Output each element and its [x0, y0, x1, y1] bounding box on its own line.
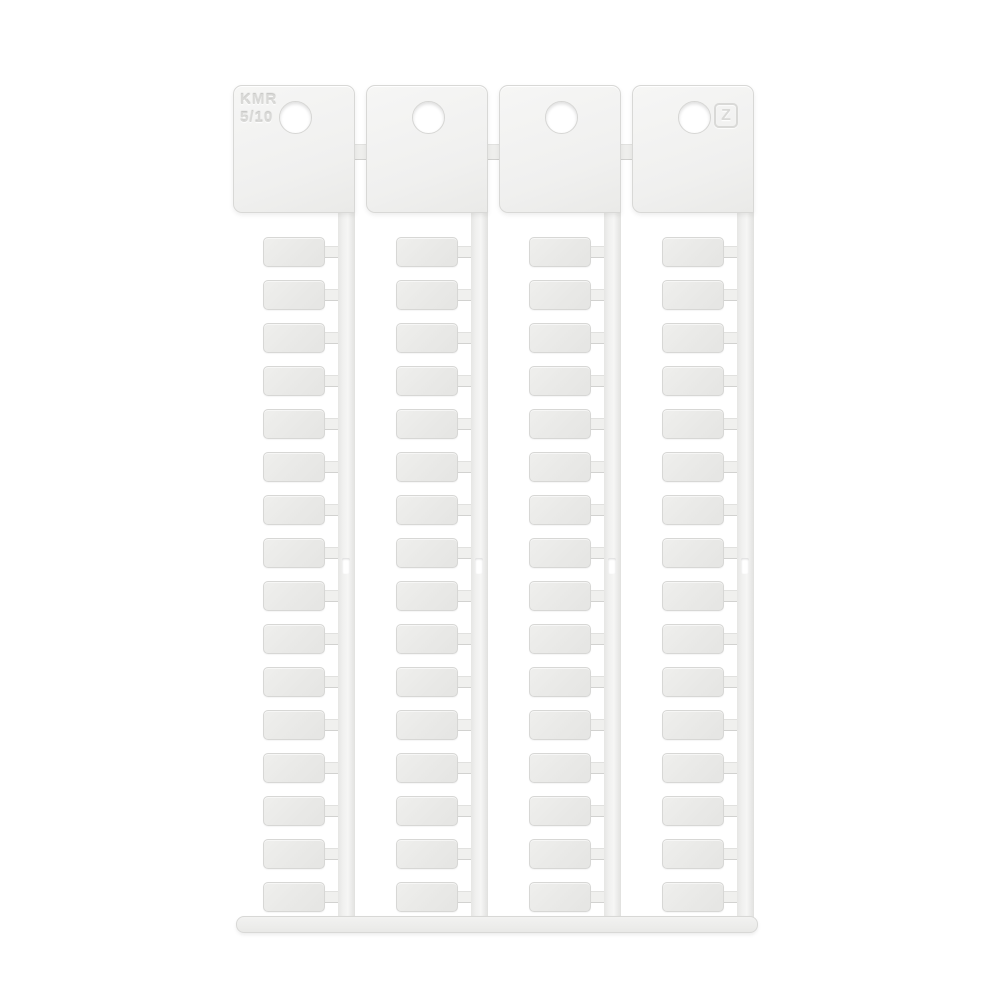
tag-stub	[324, 891, 338, 903]
tag-stub	[723, 547, 737, 559]
tag-stub	[723, 332, 737, 344]
marker-tag	[396, 452, 458, 482]
tag-stub	[457, 418, 471, 430]
tag-stub	[590, 547, 604, 559]
tag-stub	[723, 633, 737, 645]
tag-stub	[457, 547, 471, 559]
mounting-hole	[412, 101, 445, 134]
mounting-hole	[279, 101, 312, 134]
marker-tag	[396, 839, 458, 869]
marker-tag	[529, 495, 591, 525]
marker-tag	[662, 581, 724, 611]
marker-tag	[529, 409, 591, 439]
marker-tag	[529, 323, 591, 353]
tag-stub	[723, 676, 737, 688]
tag-stub	[324, 762, 338, 774]
header-tab: KMR5/10	[233, 85, 355, 213]
tag-stub	[324, 590, 338, 602]
marker-tag	[263, 323, 325, 353]
tag-stub	[590, 504, 604, 516]
tab-connector	[620, 144, 632, 160]
tab-connector	[354, 144, 366, 160]
tag-stub	[723, 891, 737, 903]
marker-tag	[263, 839, 325, 869]
marker-tag	[263, 753, 325, 783]
marker-tag	[662, 753, 724, 783]
tag-stub	[723, 246, 737, 258]
tab-connector	[487, 144, 499, 160]
marker-tag	[529, 452, 591, 482]
tag-stub	[324, 805, 338, 817]
marker-tag	[396, 495, 458, 525]
tag-stub	[590, 848, 604, 860]
tag-stub	[590, 891, 604, 903]
marker-tag	[529, 882, 591, 912]
tag-stub	[457, 805, 471, 817]
marker-tag	[662, 409, 724, 439]
tag-stub	[324, 848, 338, 860]
tag-stub	[590, 590, 604, 602]
marker-tag	[263, 452, 325, 482]
tag-stub	[457, 246, 471, 258]
marker-tag	[396, 624, 458, 654]
tag-stub	[457, 504, 471, 516]
marker-tag	[396, 323, 458, 353]
tag-stub	[457, 289, 471, 301]
tag-stub	[457, 590, 471, 602]
tag-stub	[723, 590, 737, 602]
tag-stub	[590, 676, 604, 688]
marker-tag	[529, 710, 591, 740]
tag-stub	[590, 719, 604, 731]
tag-stub	[723, 418, 737, 430]
marker-tag	[263, 495, 325, 525]
marker-tag	[662, 882, 724, 912]
marker-tag	[263, 280, 325, 310]
marker-tag	[396, 882, 458, 912]
tag-stub	[457, 375, 471, 387]
marker-tag	[396, 409, 458, 439]
tag-stub	[723, 848, 737, 860]
marker-tag	[396, 710, 458, 740]
tag-stub	[457, 891, 471, 903]
marker-tag	[396, 237, 458, 267]
tag-stub	[590, 762, 604, 774]
marker-tag	[529, 624, 591, 654]
marker-tag	[662, 796, 724, 826]
tag-stub	[457, 461, 471, 473]
marker-tag	[662, 839, 724, 869]
tag-stub	[324, 676, 338, 688]
marker-tag	[662, 667, 724, 697]
rail-slot	[475, 558, 483, 574]
tag-stub	[590, 246, 604, 258]
tag-stub	[723, 289, 737, 301]
marker-tag	[263, 366, 325, 396]
tag-stub	[457, 719, 471, 731]
bottom-runner-bar	[236, 916, 758, 933]
tag-stub	[324, 332, 338, 344]
marker-tag	[529, 667, 591, 697]
tag-stub	[457, 848, 471, 860]
marker-tag	[263, 409, 325, 439]
marker-tag	[662, 323, 724, 353]
marker-tag	[396, 796, 458, 826]
tag-stub	[324, 289, 338, 301]
product-code-line1: KMR	[240, 91, 277, 109]
tag-stub	[324, 418, 338, 430]
tag-stub	[723, 504, 737, 516]
tag-stub	[590, 805, 604, 817]
tag-stub	[723, 762, 737, 774]
marker-tag	[662, 452, 724, 482]
marker-tag	[263, 882, 325, 912]
marker-tag	[396, 581, 458, 611]
tag-stub	[590, 332, 604, 344]
tag-stub	[457, 633, 471, 645]
tag-stub	[324, 719, 338, 731]
marker-tag	[529, 581, 591, 611]
marker-tag	[396, 538, 458, 568]
tag-stub	[723, 461, 737, 473]
marker-tag	[662, 538, 724, 568]
marker-tag	[263, 796, 325, 826]
tag-stub	[457, 762, 471, 774]
tag-stub	[590, 375, 604, 387]
marker-tag	[263, 624, 325, 654]
marker-tag	[396, 366, 458, 396]
tag-stub	[324, 461, 338, 473]
marker-tag	[396, 667, 458, 697]
rail-slot	[741, 558, 749, 574]
header-tab: Z	[632, 85, 754, 213]
marker-tag	[396, 753, 458, 783]
marker-tag	[263, 710, 325, 740]
marker-tag	[263, 538, 325, 568]
marker-tag	[662, 710, 724, 740]
tag-stub	[723, 375, 737, 387]
tag-stub	[324, 547, 338, 559]
tag-stub	[590, 461, 604, 473]
marker-tag	[662, 624, 724, 654]
marker-tag	[263, 581, 325, 611]
marker-tag	[529, 796, 591, 826]
product-code-emboss: KMR5/10	[240, 91, 277, 127]
marker-tag	[529, 839, 591, 869]
mounting-hole	[545, 101, 578, 134]
tag-stub	[723, 805, 737, 817]
marker-sheet: KMR5/10Z	[0, 0, 1000, 1000]
rail-slot	[608, 558, 616, 574]
tag-stub	[324, 633, 338, 645]
marker-tag	[662, 280, 724, 310]
marker-tag	[529, 538, 591, 568]
marker-tag	[529, 280, 591, 310]
mounting-hole	[678, 101, 711, 134]
tag-stub	[457, 332, 471, 344]
tag-stub	[590, 633, 604, 645]
header-tab	[366, 85, 488, 213]
tag-stub	[324, 246, 338, 258]
tag-stub	[324, 375, 338, 387]
tag-stub	[590, 418, 604, 430]
tag-stub	[723, 719, 737, 731]
header-tab	[499, 85, 621, 213]
marker-tag	[396, 280, 458, 310]
tag-stub	[324, 504, 338, 516]
marker-tag	[662, 237, 724, 267]
marker-tag	[662, 495, 724, 525]
marker-tag	[263, 667, 325, 697]
marker-tag	[529, 753, 591, 783]
marker-tag	[529, 237, 591, 267]
product-code-line2: 5/10	[240, 109, 277, 127]
tag-stub	[590, 289, 604, 301]
brand-logo-icon: Z	[714, 103, 738, 128]
rail-slot	[342, 558, 350, 574]
marker-tag	[662, 366, 724, 396]
tag-stub	[457, 676, 471, 688]
marker-tag	[263, 237, 325, 267]
marker-tag	[529, 366, 591, 396]
